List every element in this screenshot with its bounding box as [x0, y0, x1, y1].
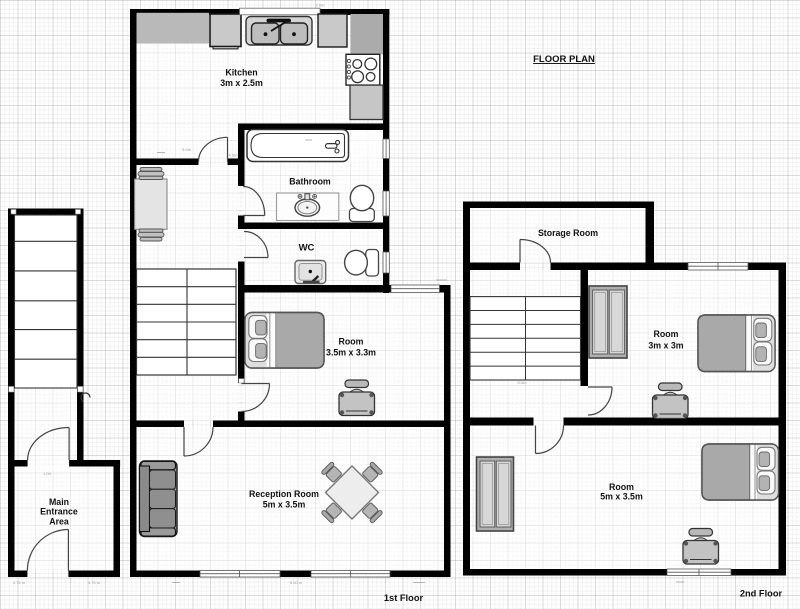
svg-text:1st Floor: 1st Floor	[384, 593, 424, 603]
svg-text:5m x 3.5m: 5m x 3.5m	[600, 492, 643, 502]
svg-text:Bathroom: Bathroom	[289, 177, 331, 187]
svg-text:Room: Room	[609, 482, 634, 492]
svg-text:Room: Room	[654, 329, 679, 339]
svg-text:3m x 2.5m: 3m x 2.5m	[220, 78, 263, 88]
svg-text:2nd Floor: 2nd Floor	[740, 589, 783, 599]
svg-text:WC: WC	[299, 243, 315, 254]
svg-text:3.0m: 3.0m	[182, 147, 192, 152]
svg-text:3m x 3m: 3m x 3m	[648, 341, 683, 351]
svg-text:Storage Room: Storage Room	[538, 228, 598, 238]
svg-text:5.0m: 5.0m	[518, 380, 528, 385]
svg-text:Area: Area	[49, 516, 69, 526]
svg-text:FLOOR PLAN: FLOOR PLAN	[533, 54, 595, 65]
svg-text:Entrance: Entrance	[40, 507, 78, 517]
svg-text:5.00 m: 5.00 m	[290, 580, 303, 585]
svg-text:3.5m x 3.3m: 3.5m x 3.3m	[326, 348, 376, 358]
svg-text:5m x 3.5m: 5m x 3.5m	[263, 500, 306, 510]
svg-text:Reception Room: Reception Room	[249, 489, 319, 499]
svg-text:4.5m: 4.5m	[229, 153, 239, 158]
svg-text:Room: Room	[339, 337, 364, 347]
svg-text:4.75 m: 4.75 m	[88, 580, 101, 585]
svg-text:4.75 m: 4.75 m	[13, 580, 26, 585]
svg-text:Kitchen: Kitchen	[225, 68, 257, 78]
svg-text:Main: Main	[49, 497, 69, 507]
svg-text:2.0m: 2.0m	[316, 3, 326, 8]
svg-text:1.09: 1.09	[43, 471, 52, 476]
